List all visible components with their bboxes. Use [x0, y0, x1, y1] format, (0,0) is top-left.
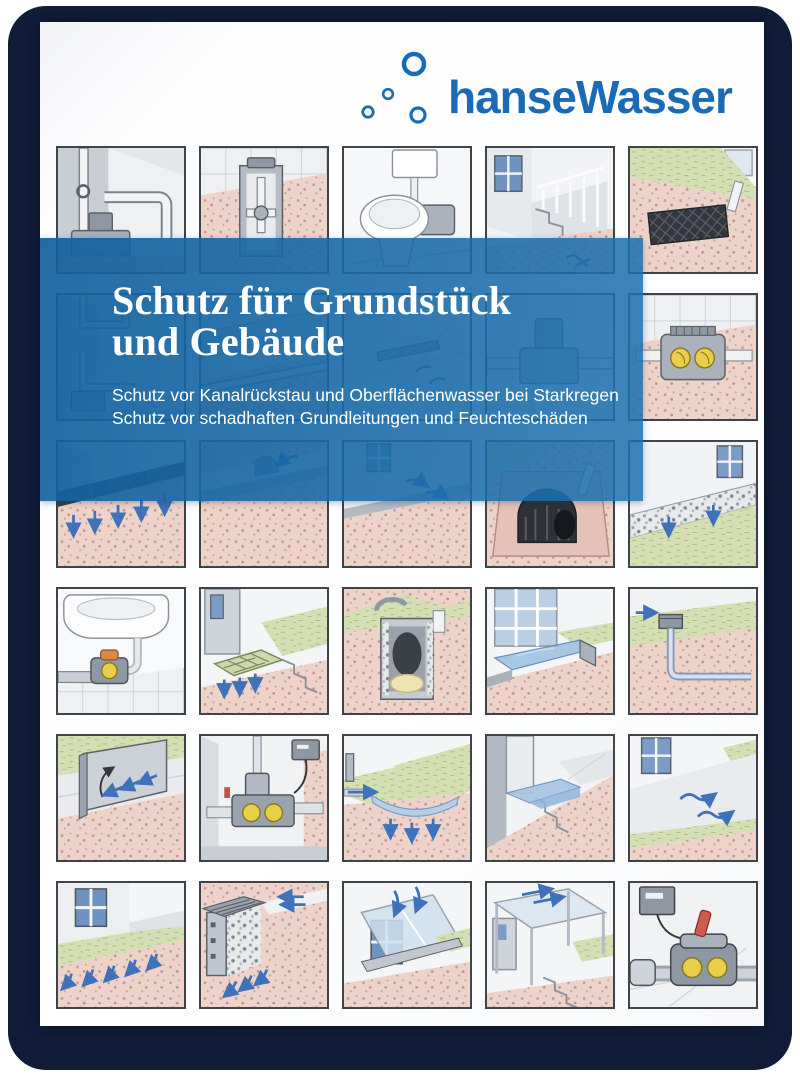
tile-lawn-seepage-slope — [56, 881, 186, 1009]
tile-yard-drain-pipe — [628, 587, 758, 715]
page-title: Schutz für Grundstückund Gebäude — [112, 280, 511, 362]
tile-window-well-retention — [485, 587, 615, 715]
tile-glazed-light-shaft-cover — [342, 881, 472, 1009]
title-banner: Schutz für Grundstückund Gebäude Schutz … — [40, 238, 643, 501]
tile-infiltration-crate — [628, 146, 758, 274]
tile-infiltration-swale — [342, 734, 472, 862]
tile-backflow-valve-hand-lever — [628, 881, 758, 1009]
tile-flooded-basement-stairs — [485, 734, 615, 862]
tile-entrance-drain-grate — [199, 587, 329, 715]
tile-entrance-canopy — [485, 881, 615, 1009]
page-subtitle: Schutz vor Kanalrückstau und Oberflächen… — [112, 384, 619, 430]
logo-text: hanseWasser — [448, 70, 732, 124]
tile-sink-backflow-valve — [56, 587, 186, 715]
tile-flood-barrier-plate — [56, 734, 186, 862]
tile-gravel-strip-drainage — [628, 440, 758, 568]
tile-soakaway-shaft — [342, 587, 472, 715]
tile-backflow-pump-unit — [199, 734, 329, 862]
tile-light-shaft-drainage — [199, 881, 329, 1009]
brochure-page: hanseWasser — [40, 22, 764, 1026]
tile-floor-drain-backflow-flaps — [628, 293, 758, 421]
brochure-cover-card: hanseWasser — [8, 6, 792, 1070]
tile-slope-away-paving — [628, 734, 758, 862]
water-bubbles-icon — [352, 36, 456, 140]
